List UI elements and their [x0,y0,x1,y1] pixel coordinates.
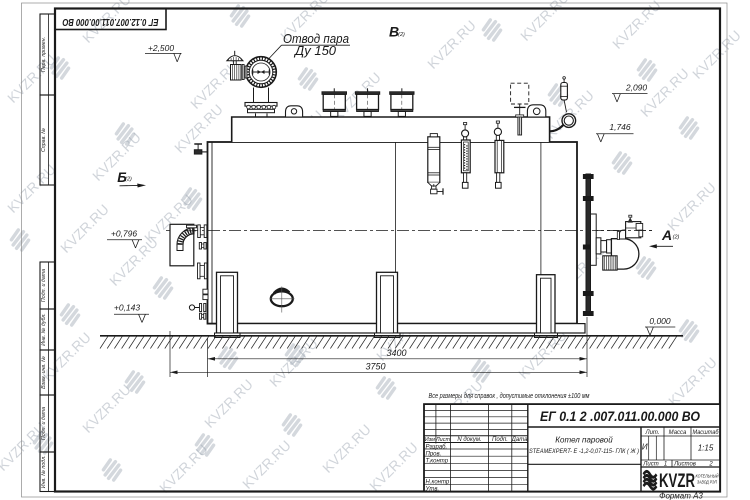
svg-text:Масштаб: Масштаб [693,430,720,436]
svg-text:Масса: Масса [669,430,687,436]
svg-text:Формат А3: Формат А3 [659,492,703,500]
svg-text:STEAMEXPERT- Е -1,2-0,07-115-: STEAMEXPERT- Е -1,2-0,07-115- ГЛК ( Ж ) [529,448,639,455]
svg-text:Подп.: Подп. [492,437,508,443]
svg-text:Дата: Дата [511,437,528,443]
svg-text:0,000: 0,000 [649,316,671,326]
svg-text:(2): (2) [398,32,405,38]
svg-text:Справ. №: Справ. № [41,128,47,152]
svg-text:2,090: 2,090 [625,83,648,93]
svg-text:+0,796: +0,796 [111,229,138,239]
svg-text:Н.контр: Н.контр [426,480,450,486]
svg-text:1:15: 1:15 [698,444,714,453]
svg-text:Перв. примен.: Перв. примен. [41,37,47,72]
svg-text:Лист: Лист [435,437,451,443]
svg-text:Подп. и дата: Подп. и дата [41,407,47,440]
svg-text:(2): (2) [673,235,680,241]
svg-text:Лист: Лист [642,462,658,468]
svg-text:Взам. инв. №: Взам. инв. № [41,356,47,389]
svg-text:Утв.: Утв. [425,486,440,492]
svg-text:N докум.: N докум. [457,437,481,443]
svg-text:Ду 150: Ду 150 [293,43,337,58]
svg-text:Инв. № подл.: Инв. № подл. [41,455,47,488]
svg-text:Инв. № дубл.: Инв. № дубл. [41,313,47,346]
svg-text:И: И [642,443,648,452]
svg-text:Т.контр: Т.контр [426,458,449,464]
svg-text:2: 2 [708,462,713,468]
svg-text:KVZR: KVZR [659,471,695,492]
svg-text:Лит.: Лит. [644,430,659,436]
svg-text:+0,143: +0,143 [114,303,141,313]
svg-text:Подп. и дата: Подп. и дата [41,269,47,302]
svg-text:+2,500: +2,500 [148,43,175,53]
svg-text:Листов: Листов [673,462,696,468]
svg-text:ЗАВОД РЭП: ЗАВОД РЭП [697,480,718,485]
svg-text:КОТЕЛЬНЫЙ: КОТЕЛЬНЫЙ [696,474,719,479]
svg-text:Все размеры для справок , допу: Все размеры для справок , допустимые отк… [429,391,590,400]
svg-text:ЕГ 0.1 2 .007.011.00.000 ВО: ЕГ 0.1 2 .007.011.00.000 ВО [540,409,700,424]
svg-text:Изм: Изм [425,437,435,443]
svg-text:3750: 3750 [365,362,385,372]
svg-text:1,746: 1,746 [609,122,631,132]
svg-text:Котел паровой: Котел паровой [555,436,613,445]
svg-text:3400: 3400 [386,348,406,358]
svg-text:(2): (2) [125,177,132,183]
svg-text:А: А [661,227,672,243]
svg-text:1: 1 [664,462,667,468]
svg-text:Пров.: Пров. [426,451,442,457]
svg-text:ЕГ 0.12.007.011.00.000 ВО: ЕГ 0.12.007.011.00.000 ВО [63,16,159,28]
svg-text:Разраб.: Разраб. [426,444,448,450]
